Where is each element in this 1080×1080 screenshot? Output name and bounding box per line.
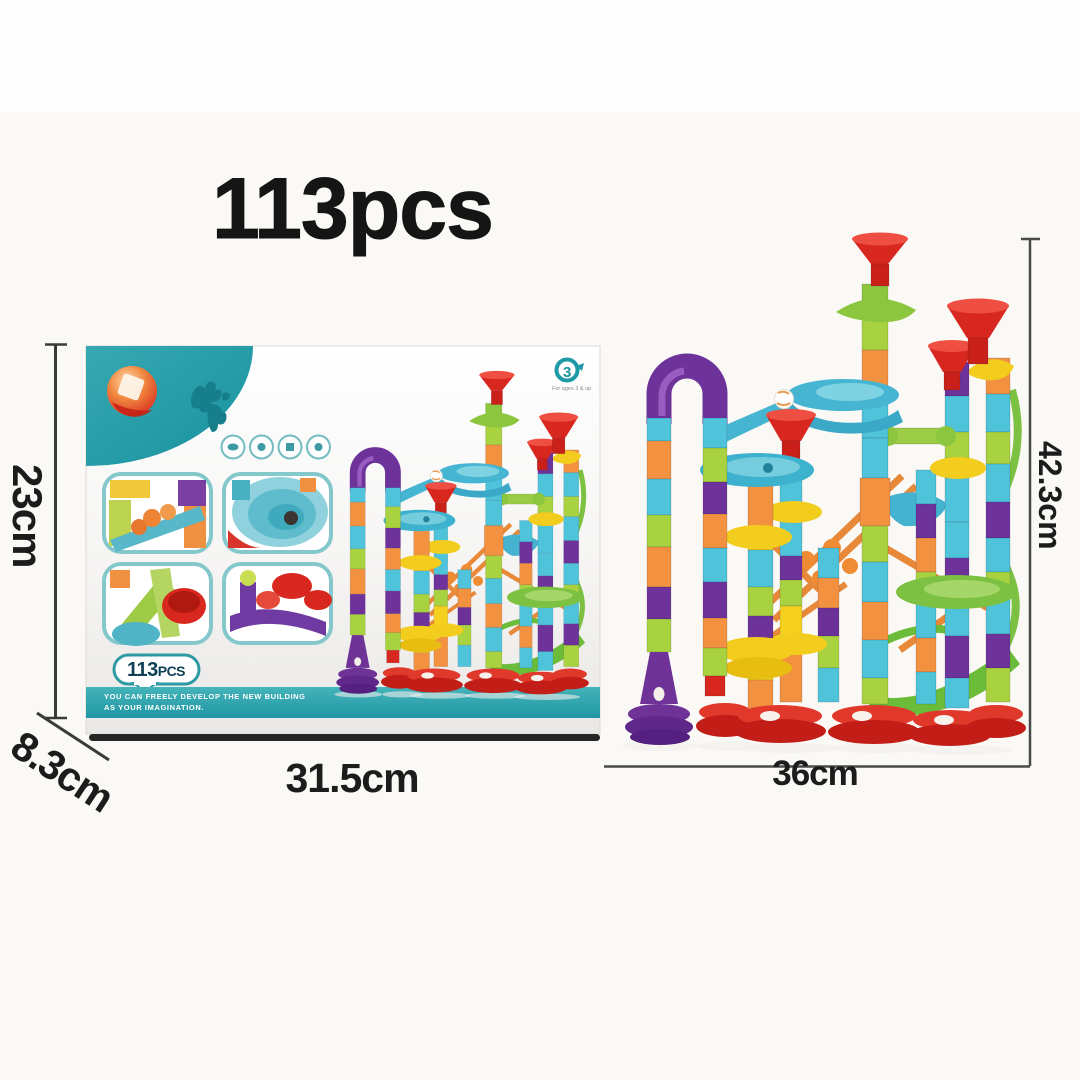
svg-text:23cm: 23cm: [4, 464, 51, 567]
svg-text:113PCS: 113PCS: [127, 659, 185, 681]
svg-text:YOU CAN FREELY DEVELOP THE NEW: YOU CAN FREELY DEVELOP THE NEW BUILDING: [104, 692, 306, 701]
svg-text:31.5cm: 31.5cm: [285, 755, 418, 801]
svg-text:3: 3: [563, 364, 571, 381]
svg-text:AS YOUR IMAGINATION.: AS YOUR IMAGINATION.: [104, 703, 204, 712]
svg-text:113pcs: 113pcs: [212, 161, 493, 257]
svg-text:For ages 3 & up: For ages 3 & up: [552, 386, 591, 392]
svg-text:42.3cm: 42.3cm: [1032, 441, 1068, 550]
svg-text:36cm: 36cm: [772, 754, 858, 793]
